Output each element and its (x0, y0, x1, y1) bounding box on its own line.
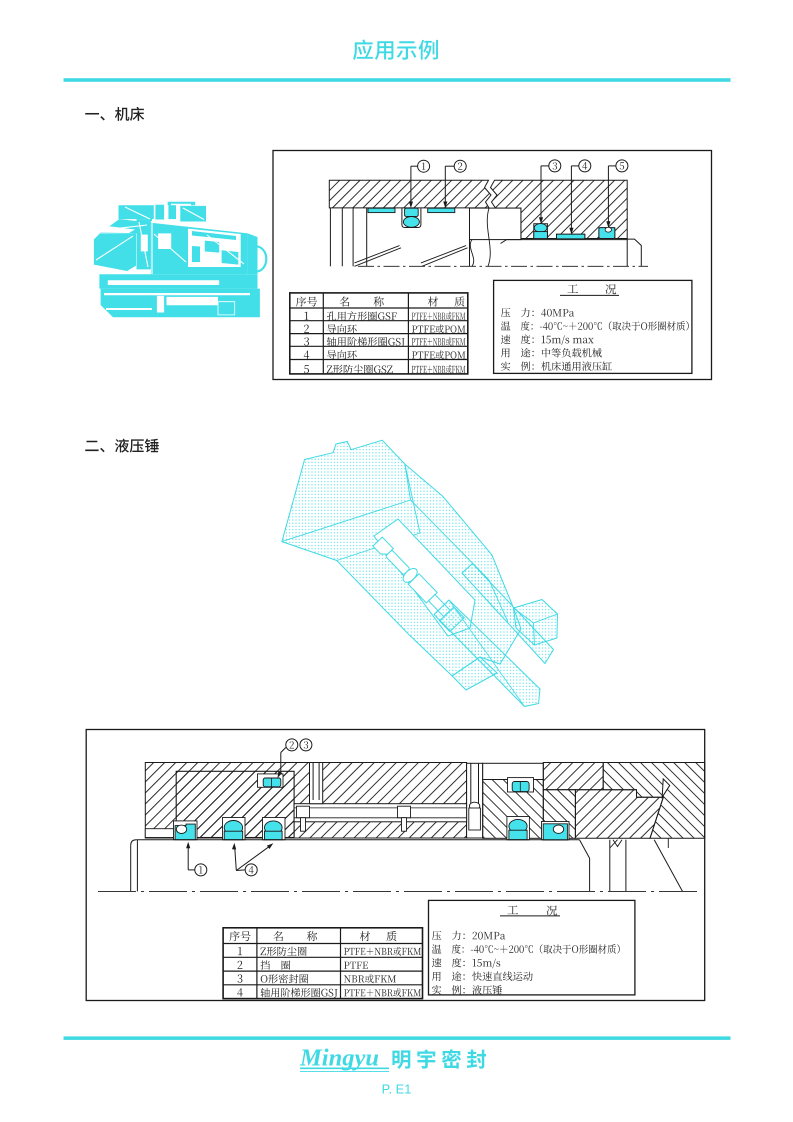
svg-text:Mingyu: Mingyu (299, 1045, 379, 1072)
svg-text:P. E1: P. E1 (382, 1081, 412, 1096)
